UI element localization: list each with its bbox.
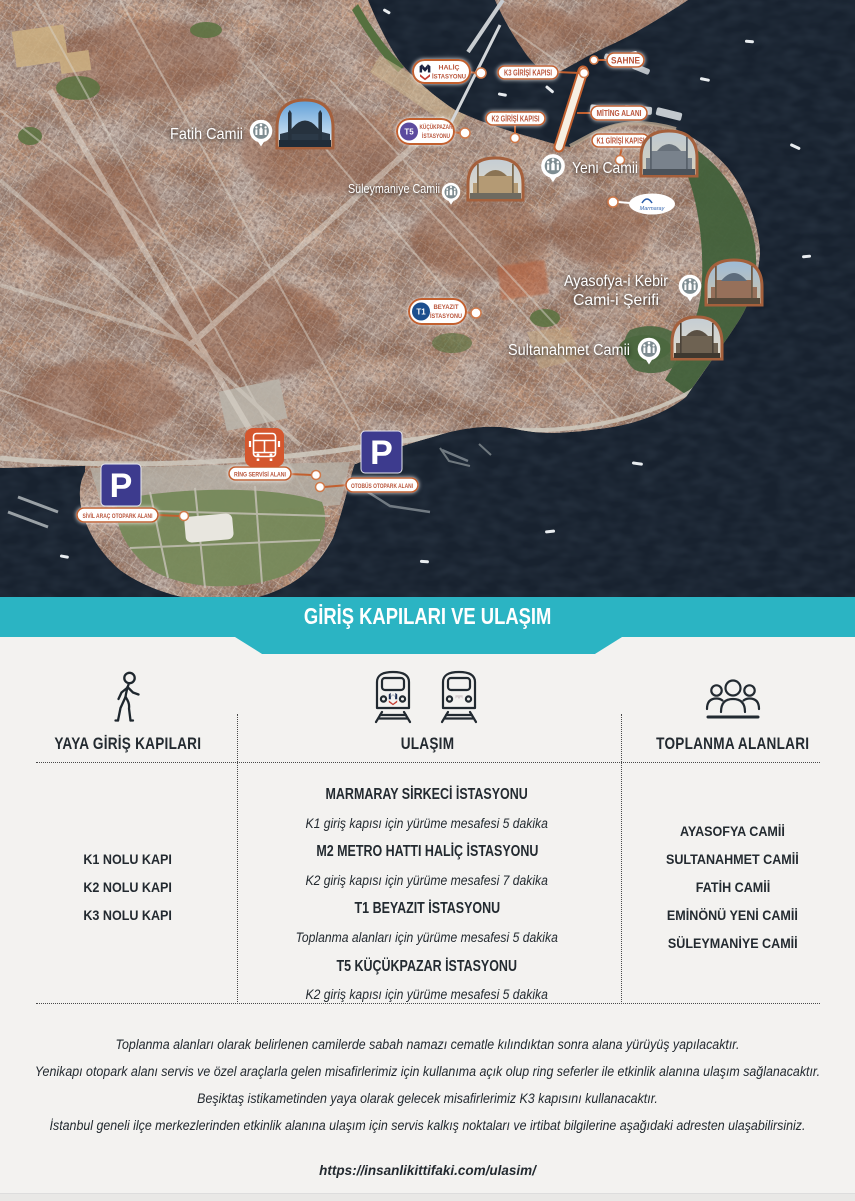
svg-text:P: P (370, 434, 393, 472)
svg-text:Ayasofya-i Kebir: Ayasofya-i Kebir (564, 273, 669, 290)
svg-text:K3 GİRİŞİ KAPISI: K3 GİRİŞİ KAPISI (504, 69, 552, 78)
svg-text:Yeni Camii: Yeni Camii (572, 160, 638, 177)
svg-text:SAHNE: SAHNE (611, 56, 640, 67)
svg-text:Sultanahmet Camii: Sultanahmet Camii (508, 342, 630, 359)
svg-text:OTOBÜS OTOPARK ALANI: OTOBÜS OTOPARK ALANI (351, 481, 413, 490)
svg-text:RİNG SERVİSİ ALANI: RİNG SERVİSİ ALANI (234, 471, 286, 479)
svg-text:İSTASYONU: İSTASYONU (430, 312, 462, 320)
svg-text:Fatih Camii: Fatih Camii (170, 126, 243, 143)
svg-text:Cami-i Şerifi: Cami-i Şerifi (573, 292, 659, 309)
svg-text:K1 GİRİŞİ KAPISI: K1 GİRİŞİ KAPISI (597, 137, 645, 146)
svg-text:Süleymaniye Camii: Süleymaniye Camii (348, 181, 440, 196)
svg-text:SİVİL ARAÇ OTOPARK ALANI: SİVİL ARAÇ OTOPARK ALANI (83, 512, 153, 520)
svg-text:Marmaray: Marmaray (640, 206, 666, 212)
svg-text:P: P (110, 467, 133, 505)
svg-text:MİTİNG ALANI: MİTİNG ALANI (597, 108, 642, 118)
svg-text:K2 GİRİŞİ KAPISI: K2 GİRİŞİ KAPISI (492, 115, 540, 124)
svg-text:İSTASYONU: İSTASYONU (432, 73, 466, 81)
svg-text:HALİÇ: HALİÇ (439, 64, 460, 72)
svg-text:T1: T1 (416, 308, 426, 317)
svg-text:T5: T5 (404, 128, 414, 137)
svg-text:KÜÇÜKPAZAR: KÜÇÜKPAZAR (420, 124, 454, 131)
svg-text:İSTASYONU: İSTASYONU (422, 133, 450, 140)
svg-text:BEYAZIT: BEYAZIT (434, 304, 459, 311)
